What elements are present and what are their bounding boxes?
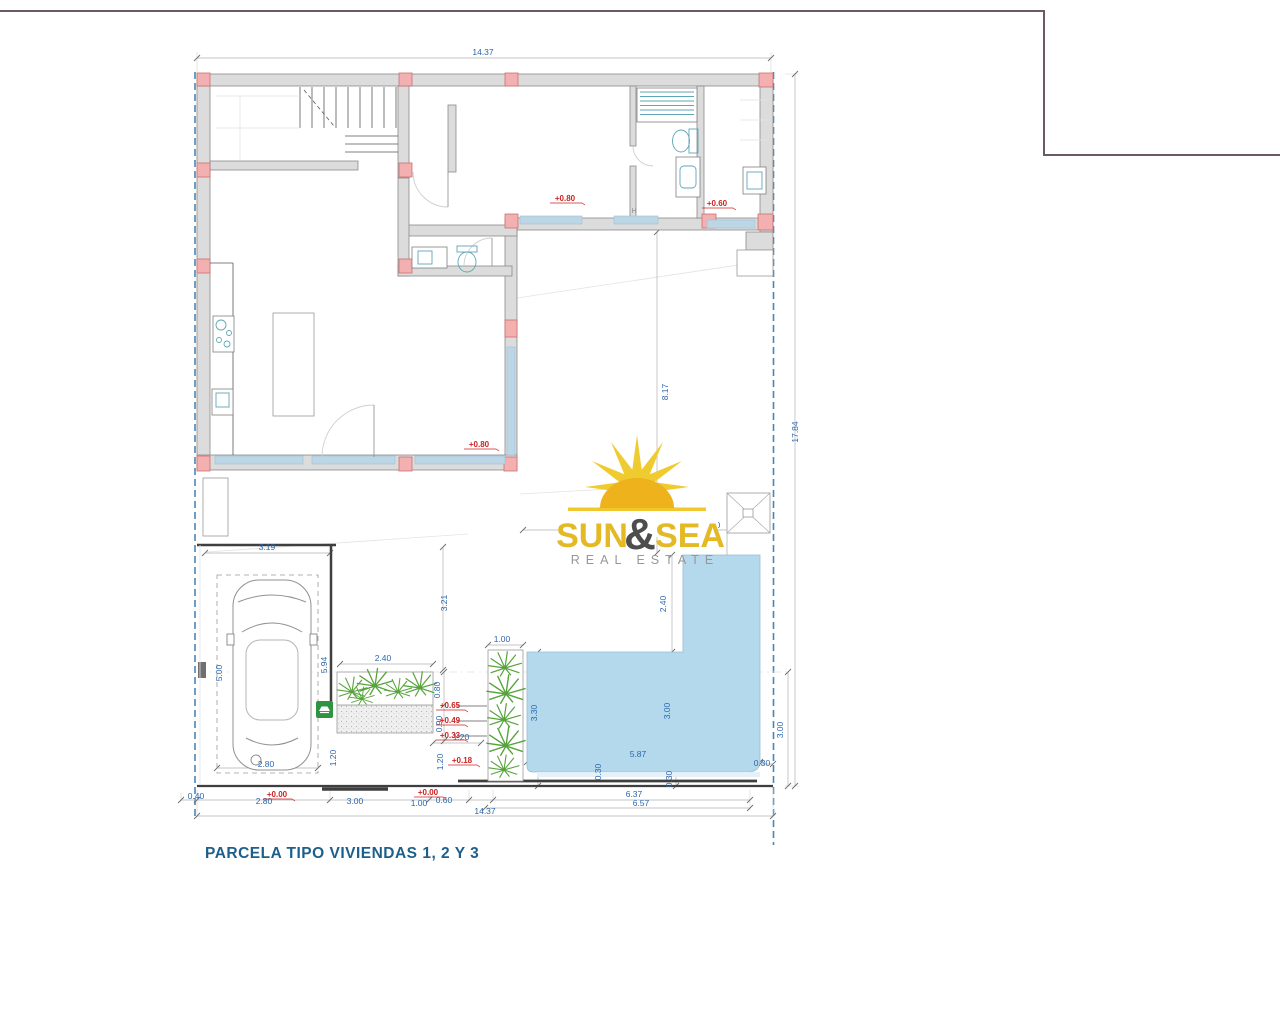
level-label: +0.00 xyxy=(418,788,439,797)
dim-label: 2.40 xyxy=(375,653,392,663)
level-label: +0.49 xyxy=(440,716,461,725)
level-label: +0.65 xyxy=(440,701,461,710)
floor-plan-page: 14.37 17.84 8.17 4.01 2.00 2.40 3.19 3.2… xyxy=(0,0,1280,1024)
dim-label: 0.60 xyxy=(436,795,453,805)
dim-label: 1.20 xyxy=(328,749,338,766)
sink-icon xyxy=(676,157,700,197)
bathroom-fixtures xyxy=(412,88,768,272)
dim-label: 5.87 xyxy=(630,749,647,759)
drawing-title: PARCELA TIPO VIVIENDAS 1, 2 Y 3 xyxy=(205,845,479,862)
dim-label: 0.30 xyxy=(664,770,674,787)
car xyxy=(227,580,317,770)
laundry-sink-icon xyxy=(743,167,766,194)
kitchen xyxy=(210,263,314,455)
level-label: +0.80 xyxy=(555,194,576,203)
logo-ampersand: & xyxy=(624,510,656,559)
level-label: +0.00 xyxy=(267,790,288,799)
logo-word-sea: SEA xyxy=(655,517,725,555)
dim-label: 14.37 xyxy=(474,806,496,816)
dim-label: 0.30 xyxy=(754,758,771,768)
dim-label: 1.00 xyxy=(411,798,428,808)
dim-label: 2.40 xyxy=(658,595,668,612)
sink-2-icon xyxy=(412,247,447,268)
dim-label: 5.94 xyxy=(319,656,329,673)
dim-label: 0.80 xyxy=(432,681,442,698)
dim-label: 0.30 xyxy=(593,763,603,780)
cooktop-icon xyxy=(213,316,234,352)
dim-label: 6.57 xyxy=(633,798,650,808)
dim-label: 1.00 xyxy=(494,634,511,644)
kitchen-sink-icon xyxy=(212,389,233,415)
toilet-icon xyxy=(673,129,699,153)
level-label: +0.60 xyxy=(707,199,728,208)
planters xyxy=(337,650,526,781)
logo-word-sun: SUN xyxy=(556,517,628,555)
staircase xyxy=(216,87,398,160)
pool-edge xyxy=(537,772,760,777)
shower-icon xyxy=(637,88,697,122)
kitchen-island xyxy=(273,313,314,416)
dim-label: 1.20 xyxy=(435,753,445,770)
dim-label: 2.80 xyxy=(258,759,275,769)
dim-label: 17.84 xyxy=(790,421,800,443)
dim-label: 0.40 xyxy=(188,791,205,801)
dim-label: 8.17 xyxy=(660,383,670,400)
level-label: +0.18 xyxy=(452,756,473,765)
planter-box xyxy=(337,705,433,733)
pool-equipment-box xyxy=(727,493,770,555)
dim-label: 3.30 xyxy=(529,704,539,721)
level-label: +0.33 xyxy=(440,731,461,740)
logo-subtitle: REAL ESTATE xyxy=(571,553,719,567)
sun-and-sea-logo: SUN & SEA REAL ESTATE xyxy=(556,435,725,567)
sun-disc-icon xyxy=(600,478,674,508)
plan-note-h: H xyxy=(631,208,636,215)
dim-label: 3.00 xyxy=(662,702,672,719)
dim-label: 3.00 xyxy=(775,721,785,738)
floor-plan-svg: 14.37 17.84 8.17 4.01 2.00 2.40 3.19 3.2… xyxy=(0,0,1280,1024)
dim-label: 3.21 xyxy=(439,594,449,611)
ev-charger-marker xyxy=(316,701,333,718)
dim-label: 3.19 xyxy=(259,542,276,552)
doors xyxy=(322,146,653,457)
dim-label: 3.00 xyxy=(347,796,364,806)
level-label: +0.80 xyxy=(469,440,490,449)
dim-label: 5.00 xyxy=(214,664,224,681)
dim-label: 14.37 xyxy=(472,47,494,57)
